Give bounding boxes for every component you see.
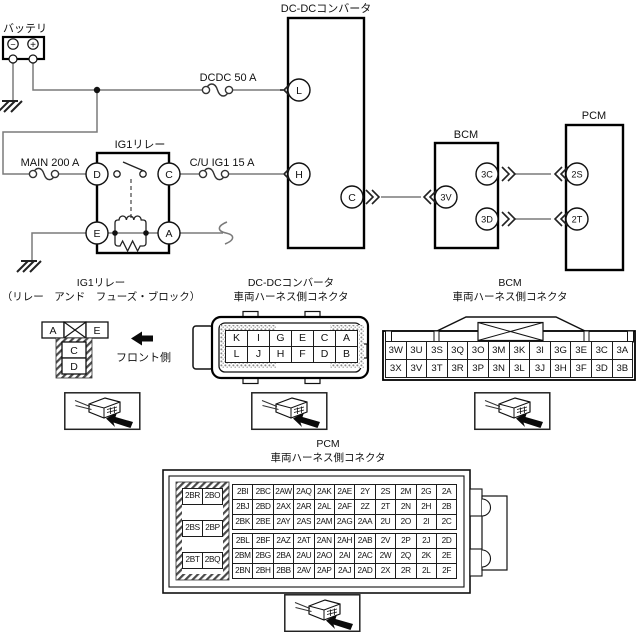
svg-text:C: C xyxy=(165,169,173,181)
pin-cell: 2Z xyxy=(355,500,375,515)
svg-text:3D: 3D xyxy=(481,215,493,225)
pin-cell: 3Q xyxy=(447,342,468,360)
pin-cell: 3B xyxy=(612,360,633,378)
pin-cell: 2BK xyxy=(233,515,253,530)
pin-cell: 2AI xyxy=(334,549,354,564)
pin-cell: 2AZ xyxy=(273,534,293,549)
pin-cell: 2AA xyxy=(355,515,375,530)
pin-cell: 2BL xyxy=(233,534,253,549)
pin-cell: 2AR xyxy=(294,500,314,515)
pin-cell: 3K xyxy=(509,342,530,360)
pin-cell: 2AP xyxy=(314,564,334,579)
battery-minus-icon: − xyxy=(8,39,18,50)
svg-text:−: − xyxy=(10,40,15,50)
svg-text:PCM: PCM xyxy=(582,110,606,122)
pin-cell: 3M xyxy=(488,342,509,360)
pin-cell: 3G xyxy=(550,342,571,360)
svg-text:BCM: BCM xyxy=(498,277,521,289)
svg-text:C: C xyxy=(70,345,78,357)
wiring-diagram-page: バッテリ − + DCDC 50 A MAIN 200 A C/U IG1 15… xyxy=(0,0,637,632)
pin-cell: 3W xyxy=(386,342,407,360)
svg-text:E: E xyxy=(93,325,100,337)
pin-cell: L xyxy=(226,347,248,363)
relay-connector-photo xyxy=(65,393,140,430)
pin-cell: 2A xyxy=(436,485,456,500)
pin-cell: 2AH xyxy=(334,534,354,549)
pin-cell: 2BB xyxy=(273,564,293,579)
svg-text:D: D xyxy=(93,169,101,181)
pin-cell: 2AN xyxy=(314,534,334,549)
pin-cell: 2AU xyxy=(294,549,314,564)
pin-cell: 2D xyxy=(436,534,456,549)
battery-symbol: バッテリ − + xyxy=(3,22,47,63)
pin-cell: 2S xyxy=(375,485,395,500)
pin-cell: 2C xyxy=(436,515,456,530)
pin-cell: 2BH xyxy=(253,564,273,579)
pin-cell: 3D xyxy=(591,360,612,378)
pin-cell: 3S xyxy=(427,342,448,360)
pin-cell: 3I xyxy=(530,342,551,360)
pin-cell: 2AB xyxy=(355,534,375,549)
pcm-side-pin-row-1: 2BR2BO xyxy=(182,488,223,505)
pin-cell: I xyxy=(248,331,270,347)
pin-cell: 2K xyxy=(416,549,436,564)
pin-cell: 2BM xyxy=(233,549,253,564)
svg-text:E: E xyxy=(93,228,100,240)
pin-cell: 2Q xyxy=(396,549,416,564)
pin-cell: 2BD xyxy=(253,500,273,515)
battery-label: バッテリ xyxy=(3,22,47,35)
pcm-side-pin-row-3: 2BT2BQ xyxy=(182,552,223,569)
pin-cell: 2AC xyxy=(355,549,375,564)
fuse-main-200a: MAIN 200 A xyxy=(21,157,80,180)
svg-text:2S: 2S xyxy=(571,170,582,180)
pin-cell: 2BQ xyxy=(203,553,223,569)
pcm-connector-keying xyxy=(470,489,507,576)
pin-cell: 2E xyxy=(436,549,456,564)
pcm-box: PCM 2S 2T xyxy=(555,110,623,270)
front-side-label: フロント側 xyxy=(116,351,171,364)
pin-cell: 2BN xyxy=(233,564,253,579)
chevron-connector-icon xyxy=(502,212,515,226)
svg-text:A: A xyxy=(165,228,172,240)
pin-cell: 2AJ xyxy=(334,564,354,579)
pin-cell: 3E xyxy=(571,342,592,360)
pin-cell: 2BT xyxy=(183,553,203,569)
svg-text:H: H xyxy=(295,169,303,181)
pin-cell: 2BP xyxy=(203,521,223,537)
pin-cell: 2AY xyxy=(273,515,293,530)
pin-cell: 3U xyxy=(406,342,427,360)
relay-terminals: D C E A xyxy=(86,163,180,244)
svg-text:C/U IG1 15 A: C/U IG1 15 A xyxy=(190,157,255,169)
pin-cell: 3X xyxy=(386,360,407,378)
svg-text:DC-DCコンバータ: DC-DCコンバータ xyxy=(248,277,334,289)
pin-cell: 2AO xyxy=(314,549,334,564)
pin-cell: K xyxy=(226,331,248,347)
svg-text:車両ハーネス側コネクタ: 車両ハーネス側コネクタ xyxy=(270,451,385,464)
pin-cell: E xyxy=(292,331,314,347)
pin-cell: 2W xyxy=(375,549,395,564)
pin-cell: 2Y xyxy=(355,485,375,500)
svg-text:3V: 3V xyxy=(440,193,452,203)
pcm-lower-pin-grid: 2BL2BF2AZ2AT2AN2AH2AB2V2P2J2D2BM2BG2BA2A… xyxy=(232,533,457,579)
pin-cell: 2G xyxy=(416,485,436,500)
svg-text:D: D xyxy=(70,361,78,373)
pin-cell: 3T xyxy=(427,360,448,378)
ground-symbol-battery xyxy=(0,101,22,112)
pin-cell: 2BS xyxy=(183,521,203,537)
svg-text:MAIN 200 A: MAIN 200 A xyxy=(21,157,80,169)
ig1-relay-symbol: IG1リレー D C E A xyxy=(86,139,180,253)
pin-cell: 2AV xyxy=(294,564,314,579)
pin-cell: 3C xyxy=(591,342,612,360)
pin-cell: 2BI xyxy=(233,485,253,500)
pin-cell: 3R xyxy=(447,360,468,378)
bcm-connector-photo xyxy=(475,393,550,430)
pin-cell: 2AW xyxy=(273,485,293,500)
pin-cell: 2J xyxy=(416,534,436,549)
pin-cell: 2AK xyxy=(314,485,334,500)
pin-cell: 3L xyxy=(509,360,530,378)
dcdc-converter-box: DC-DCコンバータ L H C xyxy=(280,2,379,248)
pin-cell: 2AE xyxy=(334,485,354,500)
pin-cell: B xyxy=(336,347,358,363)
pin-cell: 3V xyxy=(406,360,427,378)
pin-cell: 2AQ xyxy=(294,485,314,500)
pin-cell: 2B xyxy=(436,500,456,515)
pin-cell: 2N xyxy=(396,500,416,515)
pin-cell: 2BO xyxy=(203,489,223,505)
pin-cell: 2O xyxy=(396,515,416,530)
pcm-upper-pin-grid: 2BI2BC2AW2AQ2AK2AE2Y2S2M2G2A2BJ2BD2AX2AR… xyxy=(232,484,457,530)
pin-cell: 2L xyxy=(416,564,436,579)
svg-text:車両ハーネス側コネクタ: 車両ハーネス側コネクタ xyxy=(233,290,348,303)
pin-cell: 2F xyxy=(436,564,456,579)
pin-cell: 2BJ xyxy=(233,500,253,515)
pin-cell: 3N xyxy=(488,360,509,378)
wiring-lines xyxy=(3,62,551,261)
svg-text:2T: 2T xyxy=(572,215,583,225)
pin-cell: 3H xyxy=(550,360,571,378)
pin-cell: 3O xyxy=(468,342,489,360)
pin-cell: 2BC xyxy=(253,485,273,500)
pin-cell: 2BR xyxy=(183,489,203,505)
front-direction-arrow-icon xyxy=(131,332,153,346)
pin-cell: J xyxy=(248,347,270,363)
svg-text:PCM: PCM xyxy=(316,438,339,450)
pin-cell: 2AG xyxy=(334,515,354,530)
dcdc-connector-pin-grid: KIGECALJHFDB xyxy=(225,330,358,363)
bcm-connector-pin-grid: 3W3U3S3Q3O3M3K3I3G3E3C3A3X3V3T3R3P3N3L3J… xyxy=(385,341,633,378)
pin-cell: 3A xyxy=(612,342,633,360)
pin-cell: 2AX xyxy=(273,500,293,515)
svg-text:A: A xyxy=(49,325,56,337)
pin-cell: 2AT xyxy=(294,534,314,549)
pin-cell: 2BA xyxy=(273,549,293,564)
pin-cell: 2V xyxy=(375,534,395,549)
svg-text:L: L xyxy=(296,85,302,97)
relay-connector-section: IG1リレー （リレー アンド フューズ・ブロック） A E C D フロント側 xyxy=(2,277,201,429)
pin-cell: 2T xyxy=(375,500,395,515)
svg-text:（リレー アンド フューズ・ブロック）: （リレー アンド フューズ・ブロック） xyxy=(2,290,201,303)
pin-cell: D xyxy=(314,347,336,363)
svg-text:3C: 3C xyxy=(481,170,493,180)
dcdc-connector-photo xyxy=(252,393,327,430)
svg-text:+: + xyxy=(30,40,36,51)
pcm-connector-photo xyxy=(285,595,360,632)
pin-cell: G xyxy=(270,331,292,347)
pin-cell: C xyxy=(314,331,336,347)
pin-cell: 2BF xyxy=(253,534,273,549)
fuse-dcdc-50a: DCDC 50 A xyxy=(200,72,258,96)
pin-cell: 2BE xyxy=(253,515,273,530)
svg-text:DC-DCコンバータ: DC-DCコンバータ xyxy=(281,2,371,15)
svg-text:C: C xyxy=(348,192,356,204)
pin-cell: A xyxy=(336,331,358,347)
svg-text:車両ハーネス側コネクタ: 車両ハーネス側コネクタ xyxy=(452,290,567,303)
pin-cell: 2X xyxy=(375,564,395,579)
pin-cell: 3P xyxy=(468,360,489,378)
svg-text:DCDC 50 A: DCDC 50 A xyxy=(200,72,258,84)
pin-cell: 3F xyxy=(571,360,592,378)
pin-cell: 3J xyxy=(530,360,551,378)
pin-cell: 2AM xyxy=(314,515,334,530)
svg-text:IG1リレー: IG1リレー xyxy=(115,139,166,151)
pin-cell: 2AD xyxy=(355,564,375,579)
ground-symbol-relay xyxy=(17,261,41,272)
fuse-cu-ig1-15a: C/U IG1 15 A xyxy=(190,157,255,180)
pin-cell: 2AF xyxy=(334,500,354,515)
bcm-box: BCM 3V 3C 3D xyxy=(424,129,515,248)
chevron-connector-icon xyxy=(502,167,515,181)
pin-cell: H xyxy=(270,347,292,363)
pin-cell: 2R xyxy=(396,564,416,579)
pin-cell: 2M xyxy=(396,485,416,500)
wire-junction-dot xyxy=(94,87,100,93)
pin-cell: 2AL xyxy=(314,500,334,515)
pcm-side-pin-row-2: 2BS2BP xyxy=(182,520,223,537)
pin-cell: 2AS xyxy=(294,515,314,530)
pin-cell: F xyxy=(292,347,314,363)
pin-cell: 2H xyxy=(416,500,436,515)
svg-text:BCM: BCM xyxy=(454,129,478,141)
pin-cell: 2P xyxy=(396,534,416,549)
pin-cell: 2I xyxy=(416,515,436,530)
pin-cell: 2U xyxy=(375,515,395,530)
chevron-connector-icon xyxy=(366,190,379,204)
svg-text:IG1リレー: IG1リレー xyxy=(77,277,125,289)
pin-cell: 2BG xyxy=(253,549,273,564)
